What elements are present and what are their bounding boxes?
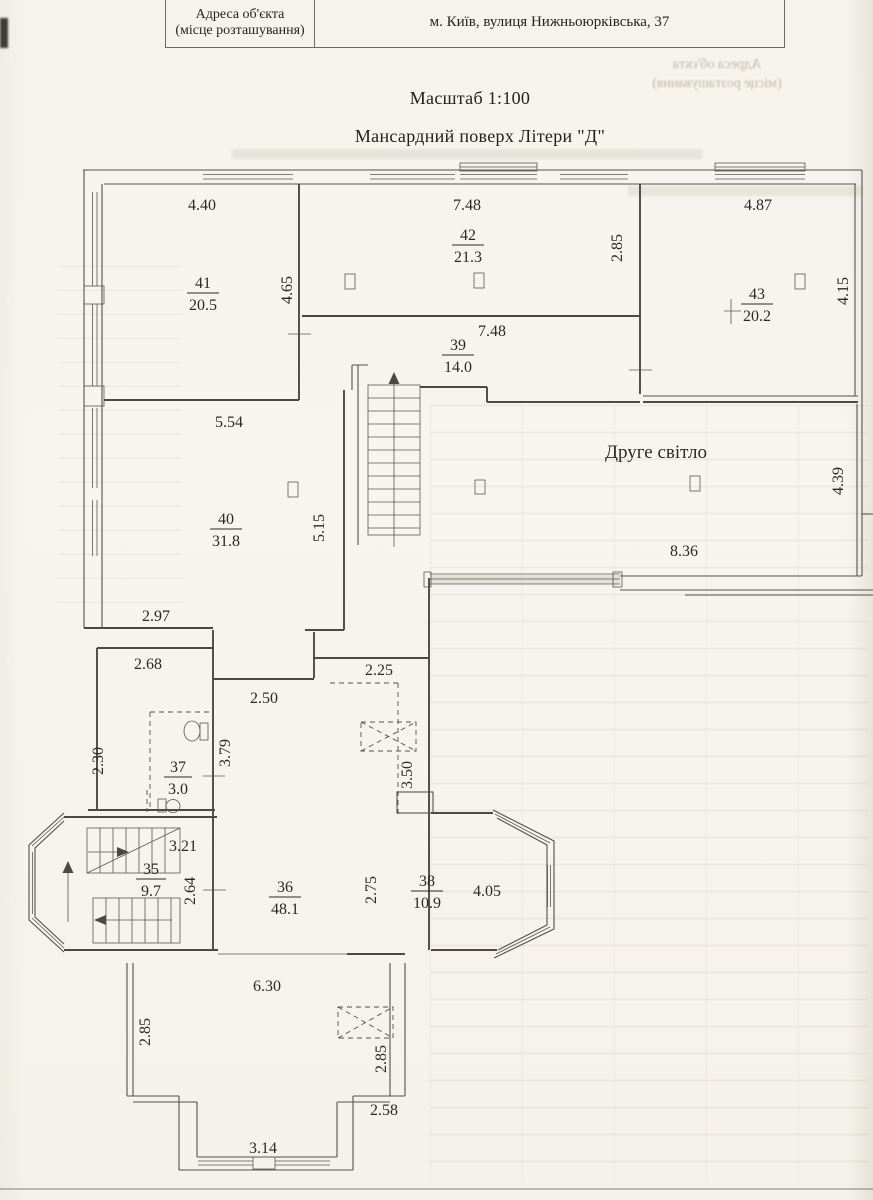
floor-plan: 41 20.5 42 21.3 43 20.2 39 14.0 40 31.8 …	[0, 0, 873, 1200]
outer-walls	[83, 170, 873, 628]
dim-4-15: 4.15	[835, 277, 852, 305]
dim-2-85-right: 2.85	[373, 1045, 390, 1073]
room-43-number: 43	[749, 286, 765, 303]
room-38-number: 38	[419, 873, 435, 890]
dim-2-30: 2.30	[90, 747, 107, 775]
dim-3-50: 3.50	[399, 761, 416, 789]
dim-2-85-top: 2.85	[609, 234, 626, 262]
room-39-area: 14.0	[444, 359, 472, 376]
room-36-area: 48.1	[271, 901, 299, 918]
vent-squares	[288, 273, 805, 497]
dim-2-68: 2.68	[134, 656, 162, 673]
dim-2-64: 2.64	[182, 877, 199, 905]
dim-4-87: 4.87	[744, 197, 772, 214]
dim-4-65: 4.65	[279, 276, 296, 304]
room-35-number: 35	[143, 861, 159, 878]
railing	[424, 572, 622, 587]
room-43-area: 20.2	[743, 308, 771, 325]
dim-6-30: 6.30	[253, 978, 281, 995]
dim-2-50: 2.50	[250, 690, 278, 707]
dim-3-21: 3.21	[169, 838, 197, 855]
dim-7-48-mid: 7.48	[478, 323, 506, 340]
room-38-area: 10.9	[413, 895, 441, 912]
room-41-area: 20.5	[189, 297, 217, 314]
room-37-area: 3.0	[168, 781, 188, 798]
scanned-page: Адреса об'єкта (місце розташування) м. К…	[0, 0, 873, 1200]
bay-window-glass	[32, 814, 551, 1169]
dim-5-15: 5.15	[311, 514, 328, 542]
room-37-number: 37	[170, 759, 186, 776]
room-42-number: 42	[460, 227, 476, 244]
u-stairs	[63, 828, 181, 943]
dim-2-97: 2.97	[142, 608, 170, 625]
dim-2-75: 2.75	[363, 876, 380, 904]
dim-2-85-left: 2.85	[137, 1018, 154, 1046]
dashed-ceiling-lines	[147, 683, 416, 1038]
dim-4-40: 4.40	[188, 197, 216, 214]
dim-4-05: 4.05	[473, 883, 501, 900]
room-35-area: 9.7	[141, 883, 161, 900]
room-36-number: 36	[277, 879, 293, 896]
dim-3-14: 3.14	[249, 1140, 277, 1157]
room-42-area: 21.3	[454, 249, 482, 266]
dimension-labels: 4.40 7.48 4.87 4.65 2.85 4.15 7.48 5.54 …	[90, 197, 852, 1157]
dim-3-79: 3.79	[217, 739, 234, 767]
room-40-number: 40	[218, 511, 234, 528]
room-40-area: 31.8	[212, 533, 240, 550]
dim-7-48-top: 7.48	[453, 197, 481, 214]
room-labels: 41 20.5 42 21.3 43 20.2 39 14.0 40 31.8 …	[136, 227, 773, 918]
dim-8-36: 8.36	[670, 543, 698, 560]
second-light-label: Друге світло	[605, 442, 707, 463]
dim-5-54: 5.54	[215, 414, 243, 431]
dim-2-25: 2.25	[365, 662, 393, 679]
room-41-number: 41	[195, 275, 211, 292]
dim-2-58: 2.58	[370, 1102, 398, 1119]
dim-4-39: 4.39	[830, 467, 847, 495]
straight-stairs	[368, 372, 420, 547]
room-39-number: 39	[450, 337, 466, 354]
